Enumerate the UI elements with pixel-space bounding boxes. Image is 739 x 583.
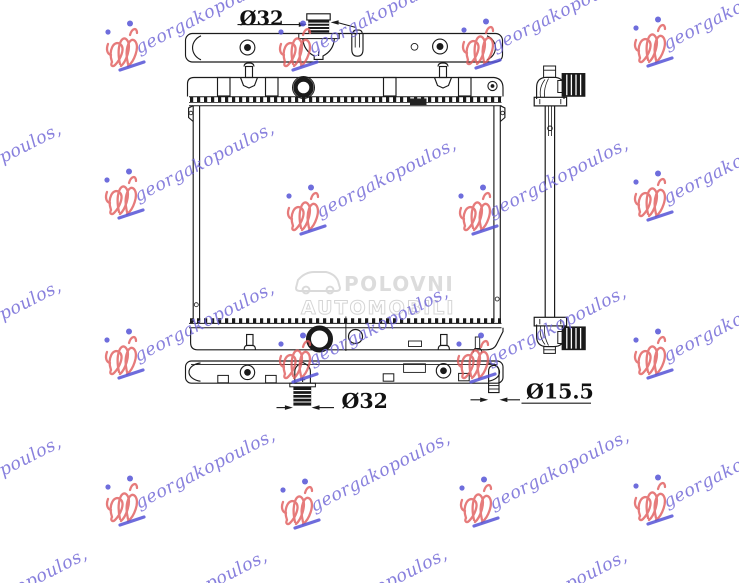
- bracket-slot: [384, 78, 397, 97]
- arrow-icon: [480, 398, 488, 403]
- drain-pin-right: [438, 335, 449, 350]
- arrow-icon: [499, 398, 507, 403]
- ribbed-hose-coupling-top: [562, 74, 585, 97]
- bottom-tank-boss-left: [240, 365, 254, 379]
- dealer-script-watermark: georgakopoulos,: [307, 429, 454, 517]
- side-top-connector: [534, 66, 585, 106]
- top-tank-boss-left: [240, 40, 255, 55]
- bottom-tank-view: Ø32 Ø15.5: [186, 361, 594, 413]
- bracket-slot: [218, 78, 231, 97]
- label-plate: [404, 364, 426, 373]
- radiator-views: Ø32: [186, 7, 594, 413]
- drawing-canvas: POLOVNI AUTOMOBILI: [0, 0, 739, 583]
- mounting-pin-top-left: [241, 63, 258, 88]
- dealer-script-watermark: georgakopoulos,: [0, 545, 91, 583]
- core-top-serration: [189, 97, 502, 106]
- top-tank-boss-right: [433, 39, 448, 54]
- dealer-script-watermark: georgakopoulos,: [664, 545, 739, 583]
- dealer-script-watermark: georgakopoulos,: [486, 427, 633, 515]
- clip-tab: [218, 375, 229, 382]
- dimension-small-pipe-label: Ø15.5: [526, 380, 594, 404]
- dealer-script-watermark: georgakopoulos,: [0, 120, 65, 208]
- car-icon: [296, 272, 340, 293]
- core-bottom-serration: [189, 321, 502, 328]
- side-plate-left: [189, 106, 200, 322]
- dealer-script-watermark: georgakopoulos,: [0, 277, 65, 365]
- dimension-bottom-outlet: Ø32: [277, 389, 388, 413]
- clip-tab: [383, 374, 394, 381]
- dealer-script-watermark: georgakopoulos,: [305, 0, 452, 58]
- mount-hole: [189, 111, 193, 115]
- radiator-technical-drawing: POLOVNI AUTOMOBILI: [0, 0, 739, 583]
- side-column: [545, 106, 554, 317]
- clip-tab: [266, 375, 277, 382]
- dimension-top-inlet-label: Ø32: [240, 7, 284, 30]
- core-clip-tab: [410, 99, 427, 106]
- dealer-script-watermark: georgakopoulos,: [484, 547, 631, 583]
- dealer-script-watermark: georgakopoulos,: [660, 425, 739, 513]
- bottom-tank-left-end-arc: [189, 363, 201, 381]
- dealer-script-watermark: georgakopoulos,: [132, 426, 279, 514]
- dealer-script-watermark: georgakopoulos,: [488, 0, 635, 56]
- dealer-script-watermark: georgakopoulos,: [131, 119, 278, 207]
- dealer-script-watermark: georgakopoulos,: [660, 0, 739, 54]
- dimension-bottom-outlet-label: Ø32: [342, 389, 388, 413]
- dealer-script-watermark: georgakopoulos,: [660, 121, 739, 209]
- mount-hole: [495, 297, 499, 301]
- bracket-slot: [266, 78, 279, 97]
- dealer-script-watermark: georgakopoulos,: [124, 547, 271, 583]
- bottom-tank-boss-right: [436, 364, 450, 378]
- mount-hole: [194, 303, 198, 307]
- mount-hole: [501, 111, 505, 115]
- dealer-script-watermark: georgakopoulos,: [660, 279, 739, 367]
- top-tank-small-hole: [411, 43, 418, 50]
- bracket-slot: [459, 78, 472, 97]
- dealer-script-watermark: georgakopoulos,: [0, 433, 65, 521]
- dealer-script-watermark: georgakopoulos,: [313, 135, 460, 223]
- dealer-script-watermark: georgakopoulos,: [485, 135, 632, 223]
- top-tank-left-end-arc: [193, 36, 201, 60]
- corner-boss: [488, 81, 497, 90]
- dealer-script-watermark: georgakopoulos,: [304, 545, 451, 583]
- footer-tab: [409, 341, 422, 347]
- arrow-icon: [285, 405, 293, 410]
- arrow-icon: [312, 405, 320, 410]
- dealer-script-watermark: georgakopoulos,: [483, 283, 630, 371]
- mounting-pin-top-right: [435, 63, 452, 88]
- filler-neck: [293, 77, 315, 99]
- drain-pin-left: [244, 335, 255, 350]
- header-tank: [188, 63, 504, 99]
